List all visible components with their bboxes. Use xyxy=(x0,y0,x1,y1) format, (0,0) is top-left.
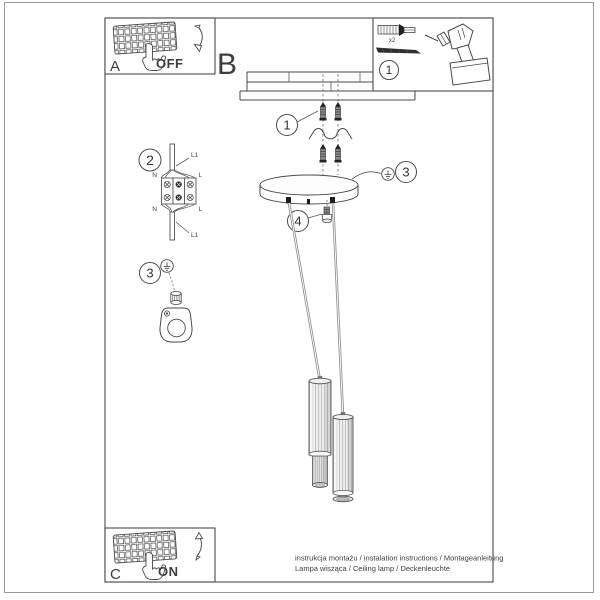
instruction-sheet: 1 3 4 xyxy=(0,0,600,600)
switch-off-label: OFF xyxy=(156,56,184,71)
panel-a: A OFF xyxy=(105,18,215,75)
footer-line-2: Lampa wisząca / Ceiling lamp / Deckenleu… xyxy=(295,564,450,573)
left-lamp-shade xyxy=(309,376,331,487)
panel-c-label: C xyxy=(110,566,121,583)
l1-top-label: L1 xyxy=(191,152,199,159)
supply-cable-top xyxy=(170,144,175,170)
ceiling-canopy xyxy=(260,175,358,204)
step-3-number-side: 3 xyxy=(146,266,153,281)
step-1-number: 1 xyxy=(283,118,290,133)
earth-symbol-icon xyxy=(161,260,174,273)
live-bottom-label: L xyxy=(199,206,203,213)
neutral-bottom-label: N xyxy=(152,206,157,213)
live-top-label: L xyxy=(199,172,203,179)
panel-c: C ON xyxy=(105,528,215,583)
earth-symbol-icon xyxy=(382,168,395,181)
step-2-number: 2 xyxy=(146,152,154,168)
right-lamp-shade xyxy=(333,412,353,502)
step-3-number: 3 xyxy=(402,165,409,180)
instruction-drawing: 1 3 4 xyxy=(0,0,600,600)
ground-screw xyxy=(171,292,181,305)
neutral-top-label: N xyxy=(152,172,157,179)
cable-stud xyxy=(286,197,291,203)
cable-stud xyxy=(330,197,335,203)
switch-on-label: ON xyxy=(158,564,179,579)
ground-bracket xyxy=(160,308,192,342)
l1-bottom-label: L1 xyxy=(191,232,199,239)
footer-line-1: instrukcja montażu / instalation instruc… xyxy=(295,554,503,563)
cable-stud xyxy=(307,199,310,204)
step-1-number-tools: 1 xyxy=(386,63,393,77)
panel-b-label: B xyxy=(217,48,237,81)
tools-box: x2 1 xyxy=(373,18,493,91)
panel-a-label: A xyxy=(110,58,120,75)
terminal-block xyxy=(162,178,197,204)
lamp-cable-bottom xyxy=(170,212,175,240)
step-4-number: 4 xyxy=(294,214,301,229)
anchor-quantity-label: x2 xyxy=(389,38,396,44)
